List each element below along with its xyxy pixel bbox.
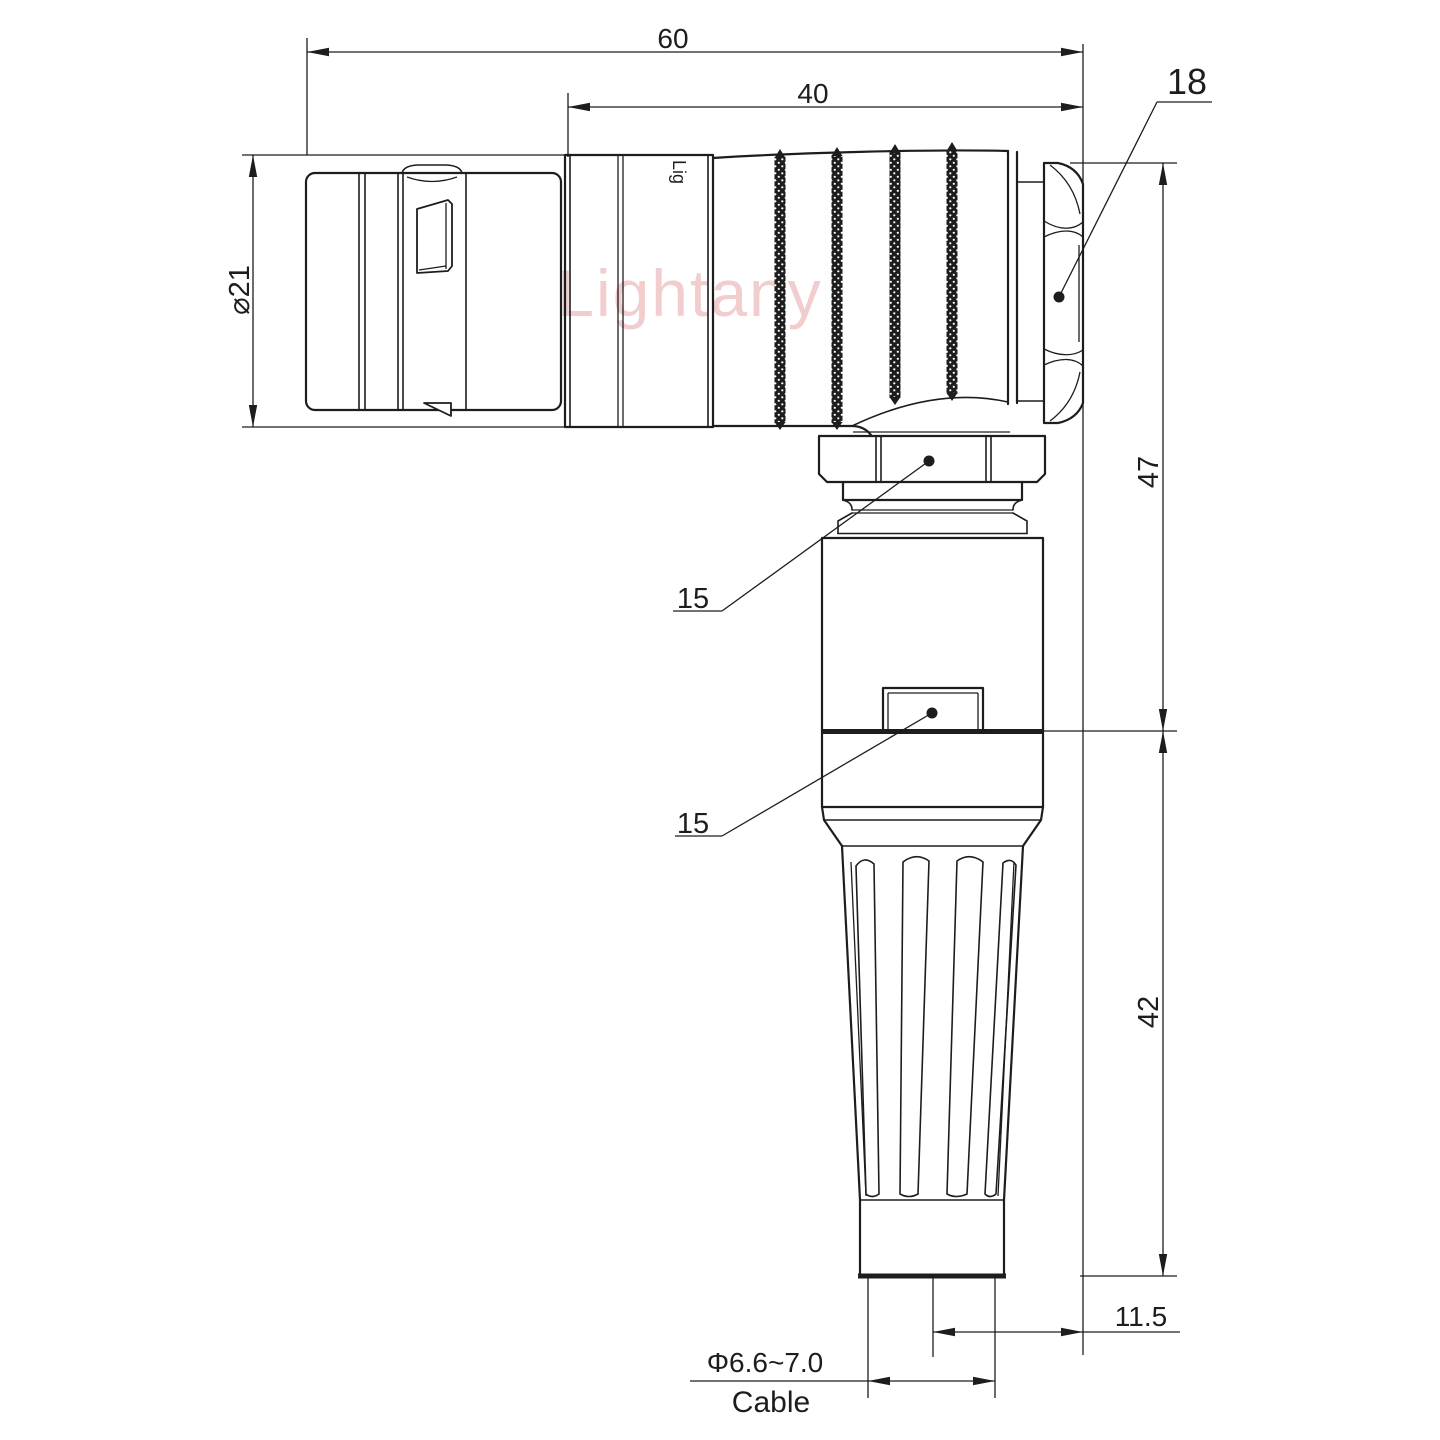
- dim-cable-offset: 11.5: [933, 1301, 1180, 1336]
- dim-overall-length: 60: [307, 23, 1083, 155]
- neck-groove: [1017, 182, 1044, 401]
- dim-shell-diameter: ⌀21: [224, 155, 565, 427]
- leader-dot: [1054, 292, 1065, 303]
- callout-coupling-nut: 15: [673, 456, 935, 616]
- shell-engraving: Lig: [669, 160, 689, 184]
- dim-rear-length-text: 40: [797, 78, 828, 109]
- cable-collar: [858, 1200, 1006, 1276]
- dim-cable-offset-text: 11.5: [1115, 1301, 1167, 1332]
- knurl-band: [775, 149, 786, 430]
- dim-height-lower-text: 42: [1133, 996, 1165, 1028]
- gland-washer: [838, 482, 1027, 534]
- callout-nut-size-text: 18: [1167, 61, 1207, 102]
- knurl-band: [832, 147, 843, 430]
- latch-window: [417, 200, 452, 273]
- rear-hex-nut: [1044, 163, 1083, 423]
- elbow-crease: [852, 397, 1008, 426]
- front-shell: [306, 165, 561, 416]
- body-cylinder: [822, 534, 1043, 847]
- leader-dot: [924, 456, 935, 467]
- knurl-band: [947, 142, 958, 401]
- dim-height-upper-text: 47: [1133, 456, 1165, 488]
- dim-overall-length-text: 60: [657, 23, 688, 54]
- dim-cable-diameter: Φ6.6~7.0 Cable: [690, 1347, 995, 1419]
- leader-dot: [927, 708, 938, 719]
- callout-backshell-text: 15: [677, 808, 709, 840]
- callout-coupling-nut-text: 15: [677, 583, 709, 615]
- dim-rear-length: 40: [568, 78, 1083, 157]
- dim-cable-diameter-text: Φ6.6~7.0: [707, 1347, 824, 1378]
- technical-drawing-canvas: Lightany Lig: [0, 0, 1440, 1440]
- strain-relief: [842, 846, 1023, 1276]
- knurl-band: [890, 144, 901, 405]
- dim-height-lower: 42: [1043, 731, 1177, 1276]
- callout-nut-size: 18: [1054, 61, 1213, 303]
- cable-label: Cable: [732, 1386, 810, 1419]
- dim-shell-diameter-text: ⌀21: [224, 265, 256, 315]
- dim-height-upper: 47: [1070, 163, 1177, 1276]
- key-bump: [402, 165, 462, 173]
